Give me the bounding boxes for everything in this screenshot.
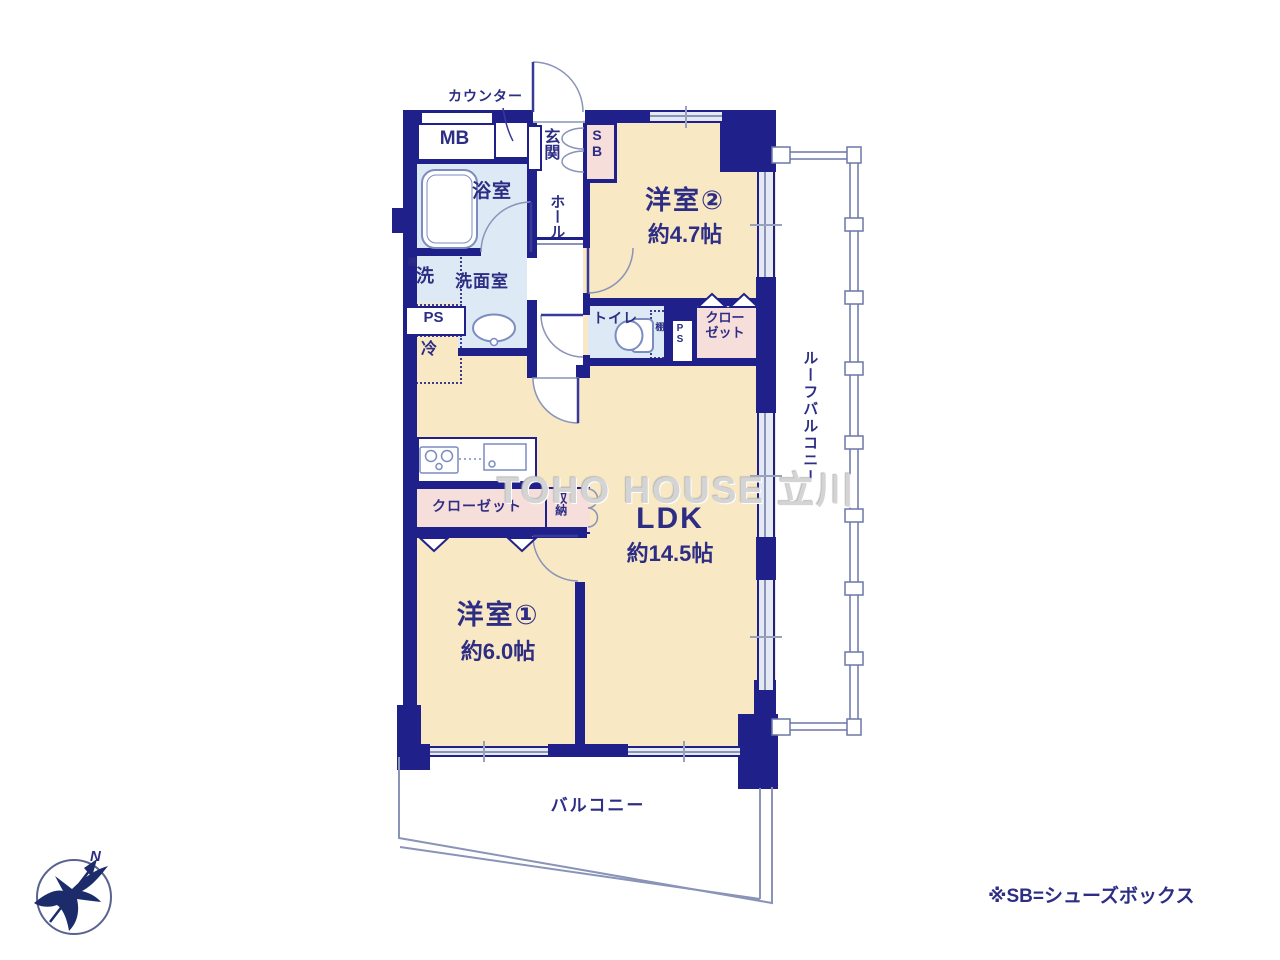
compass-bird-icon — [34, 866, 108, 931]
entrance-label: 玄関 — [540, 128, 558, 184]
compass-circle — [37, 860, 111, 934]
watermark: TOHO HOUSE 立川 — [497, 460, 855, 514]
compass-needle — [50, 866, 93, 922]
wall — [576, 365, 590, 378]
window — [757, 580, 775, 690]
pipe-space-mid-label: PS — [674, 323, 686, 357]
room1-name: 洋室① — [433, 600, 563, 631]
shoe-box-label: SB — [589, 127, 605, 171]
balcony-sliding-window — [430, 746, 548, 757]
wall — [756, 277, 776, 413]
washer-label: 洗 — [416, 266, 434, 287]
wall — [720, 110, 776, 172]
closet2-label: クローゼット — [695, 311, 755, 341]
toilet-label: トイレ — [593, 310, 638, 326]
balcony-sliding-window — [628, 746, 740, 757]
window — [650, 110, 722, 123]
wall — [397, 744, 430, 770]
shelf-label: 棚 — [654, 322, 664, 331]
compass — [34, 859, 111, 934]
wall — [403, 527, 587, 538]
floor-plan-page: { "rooms": [ {"name": "洋室②", "size": "約4… — [0, 0, 1280, 960]
sb-note: ※SB=シューズボックス — [988, 886, 1194, 908]
wall — [417, 248, 481, 256]
counter-label: カウンター — [448, 88, 523, 104]
wall — [575, 582, 585, 748]
compass-north-label: N — [90, 848, 101, 865]
hall-label: ホール — [548, 194, 565, 258]
window — [757, 172, 775, 277]
wall — [392, 208, 417, 233]
fridge-label: 冷 — [421, 341, 437, 359]
wall — [666, 303, 690, 319]
room2-name: 洋室② — [620, 186, 750, 216]
wall — [585, 110, 650, 123]
washroom-label: 洗面室 — [455, 272, 509, 292]
bath-label: 浴室 — [472, 181, 512, 203]
wall — [548, 744, 628, 757]
balcony-outline — [399, 757, 772, 903]
wall — [458, 348, 535, 356]
ldk-size: 約14.5帖 — [600, 541, 740, 566]
shoe-box-door-arc — [562, 128, 584, 172]
wall — [738, 714, 778, 789]
room1-size: 約6.0帖 — [433, 639, 563, 664]
entrance-door-arc — [533, 62, 583, 112]
room2-size: 約4.7帖 — [620, 222, 750, 247]
wall — [527, 365, 537, 378]
wall — [756, 537, 776, 580]
balcony-label: バルコニー — [538, 796, 658, 816]
hall-floor — [537, 240, 583, 378]
washroom-floor — [458, 303, 530, 353]
meter-box-label: MB — [417, 128, 492, 150]
pipe-space-left-label: PS — [405, 309, 462, 326]
